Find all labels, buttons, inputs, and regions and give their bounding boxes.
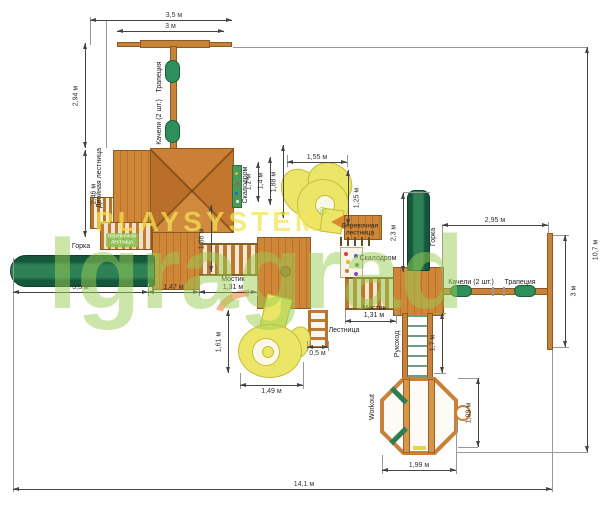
dimension-label: 1,61 м <box>216 331 223 351</box>
climb-hold <box>236 200 239 203</box>
extension-line <box>328 341 329 351</box>
dimension-10,7 м: 10,7 м <box>587 47 588 452</box>
label-monkey-bars: Рукоход <box>394 331 402 357</box>
dimension-14,1 м: 14,1 м <box>13 489 552 490</box>
dimension-label: 1,55 м <box>307 154 327 161</box>
dimension-1,99 м: 1,99 м <box>382 470 456 471</box>
dimension-label: 2,94 м <box>73 85 80 105</box>
swing-seat-top-2 <box>165 120 180 143</box>
dimension-label: 1,7 м <box>430 335 437 352</box>
extension-line <box>456 420 457 474</box>
extension-line <box>552 350 553 492</box>
dimension-2,94 м: 2,94 м <box>85 43 86 148</box>
dimension-1,49 м: 1,49 м <box>240 385 303 386</box>
dimension-label: 10,7 м <box>593 239 600 259</box>
dimension-label: 1,25 м <box>354 187 361 207</box>
dimension-1,55 м: 1,55 м <box>287 162 347 163</box>
dimension-3 м: 3 м <box>565 235 566 347</box>
climbwall-strip-top <box>232 165 242 208</box>
swing-seat-top-1 <box>165 60 180 83</box>
label-trapeze-top: Трапеция <box>156 61 164 92</box>
octagon-rail-right <box>428 379 435 453</box>
climb-hold <box>235 192 238 195</box>
dimension-label: 14,1 м <box>294 481 314 488</box>
climb-hold <box>236 182 239 185</box>
dimension-label: 3,5 м <box>166 12 183 19</box>
swing-right-tick <box>503 287 505 296</box>
dimension-3,5 м: 3,5 м <box>90 20 232 21</box>
extension-line <box>106 20 107 148</box>
label-trapeze-right: Трапеция <box>504 279 535 287</box>
extension-line <box>347 155 348 167</box>
dimension-label: 1,99 м <box>466 402 473 422</box>
label-double-ladder: Двойная лестница <box>96 148 104 208</box>
extension-line <box>548 222 549 234</box>
dimension-label: 1,99 м <box>409 462 429 469</box>
spiral-core <box>262 346 274 358</box>
extension-line <box>434 373 446 374</box>
extension-line <box>553 347 569 348</box>
swing-right-endpost <box>547 233 553 350</box>
dimension-label: 1,4 м <box>258 173 265 190</box>
octagon-yellow-step <box>413 446 426 450</box>
dimension-label: 1,49 м <box>261 388 281 395</box>
extension-line <box>303 362 304 389</box>
octagon-rail-left <box>403 379 410 453</box>
dimension-label: 3 м <box>165 23 176 30</box>
climb-hold <box>235 172 238 175</box>
dimension-1,99 м: 1,99 м <box>478 378 479 447</box>
playground-top-view-plan: PLAYSYSTEM Igragrad ® 3,5 м3 м1,55 м2,95… <box>0 0 600 511</box>
watermark-registered-mark: ® <box>318 206 326 218</box>
label-workout: Workout <box>369 394 377 420</box>
extension-line <box>458 447 478 448</box>
workout-octagon <box>380 377 458 455</box>
extension-line <box>458 378 478 379</box>
dimension-label: 3 м <box>571 286 578 297</box>
watermark-igragrad: Igragrad <box>48 224 464 323</box>
extension-line <box>233 47 587 48</box>
extension-line <box>457 452 588 453</box>
dimension-label: 2,95 м <box>485 217 505 224</box>
swing-right-tick <box>492 287 494 296</box>
dimension-0,5 м: 0,5 м <box>307 347 328 348</box>
dimension-3 м: 3 м <box>117 31 224 32</box>
label-swings-top: Качели (2 шт.) <box>156 99 164 145</box>
dimension-label: 1,88 м <box>271 171 278 191</box>
label-climbwall-top: Скалодром <box>242 167 250 204</box>
extension-line <box>403 192 430 193</box>
dimension-label: 0,5 м <box>309 350 326 357</box>
